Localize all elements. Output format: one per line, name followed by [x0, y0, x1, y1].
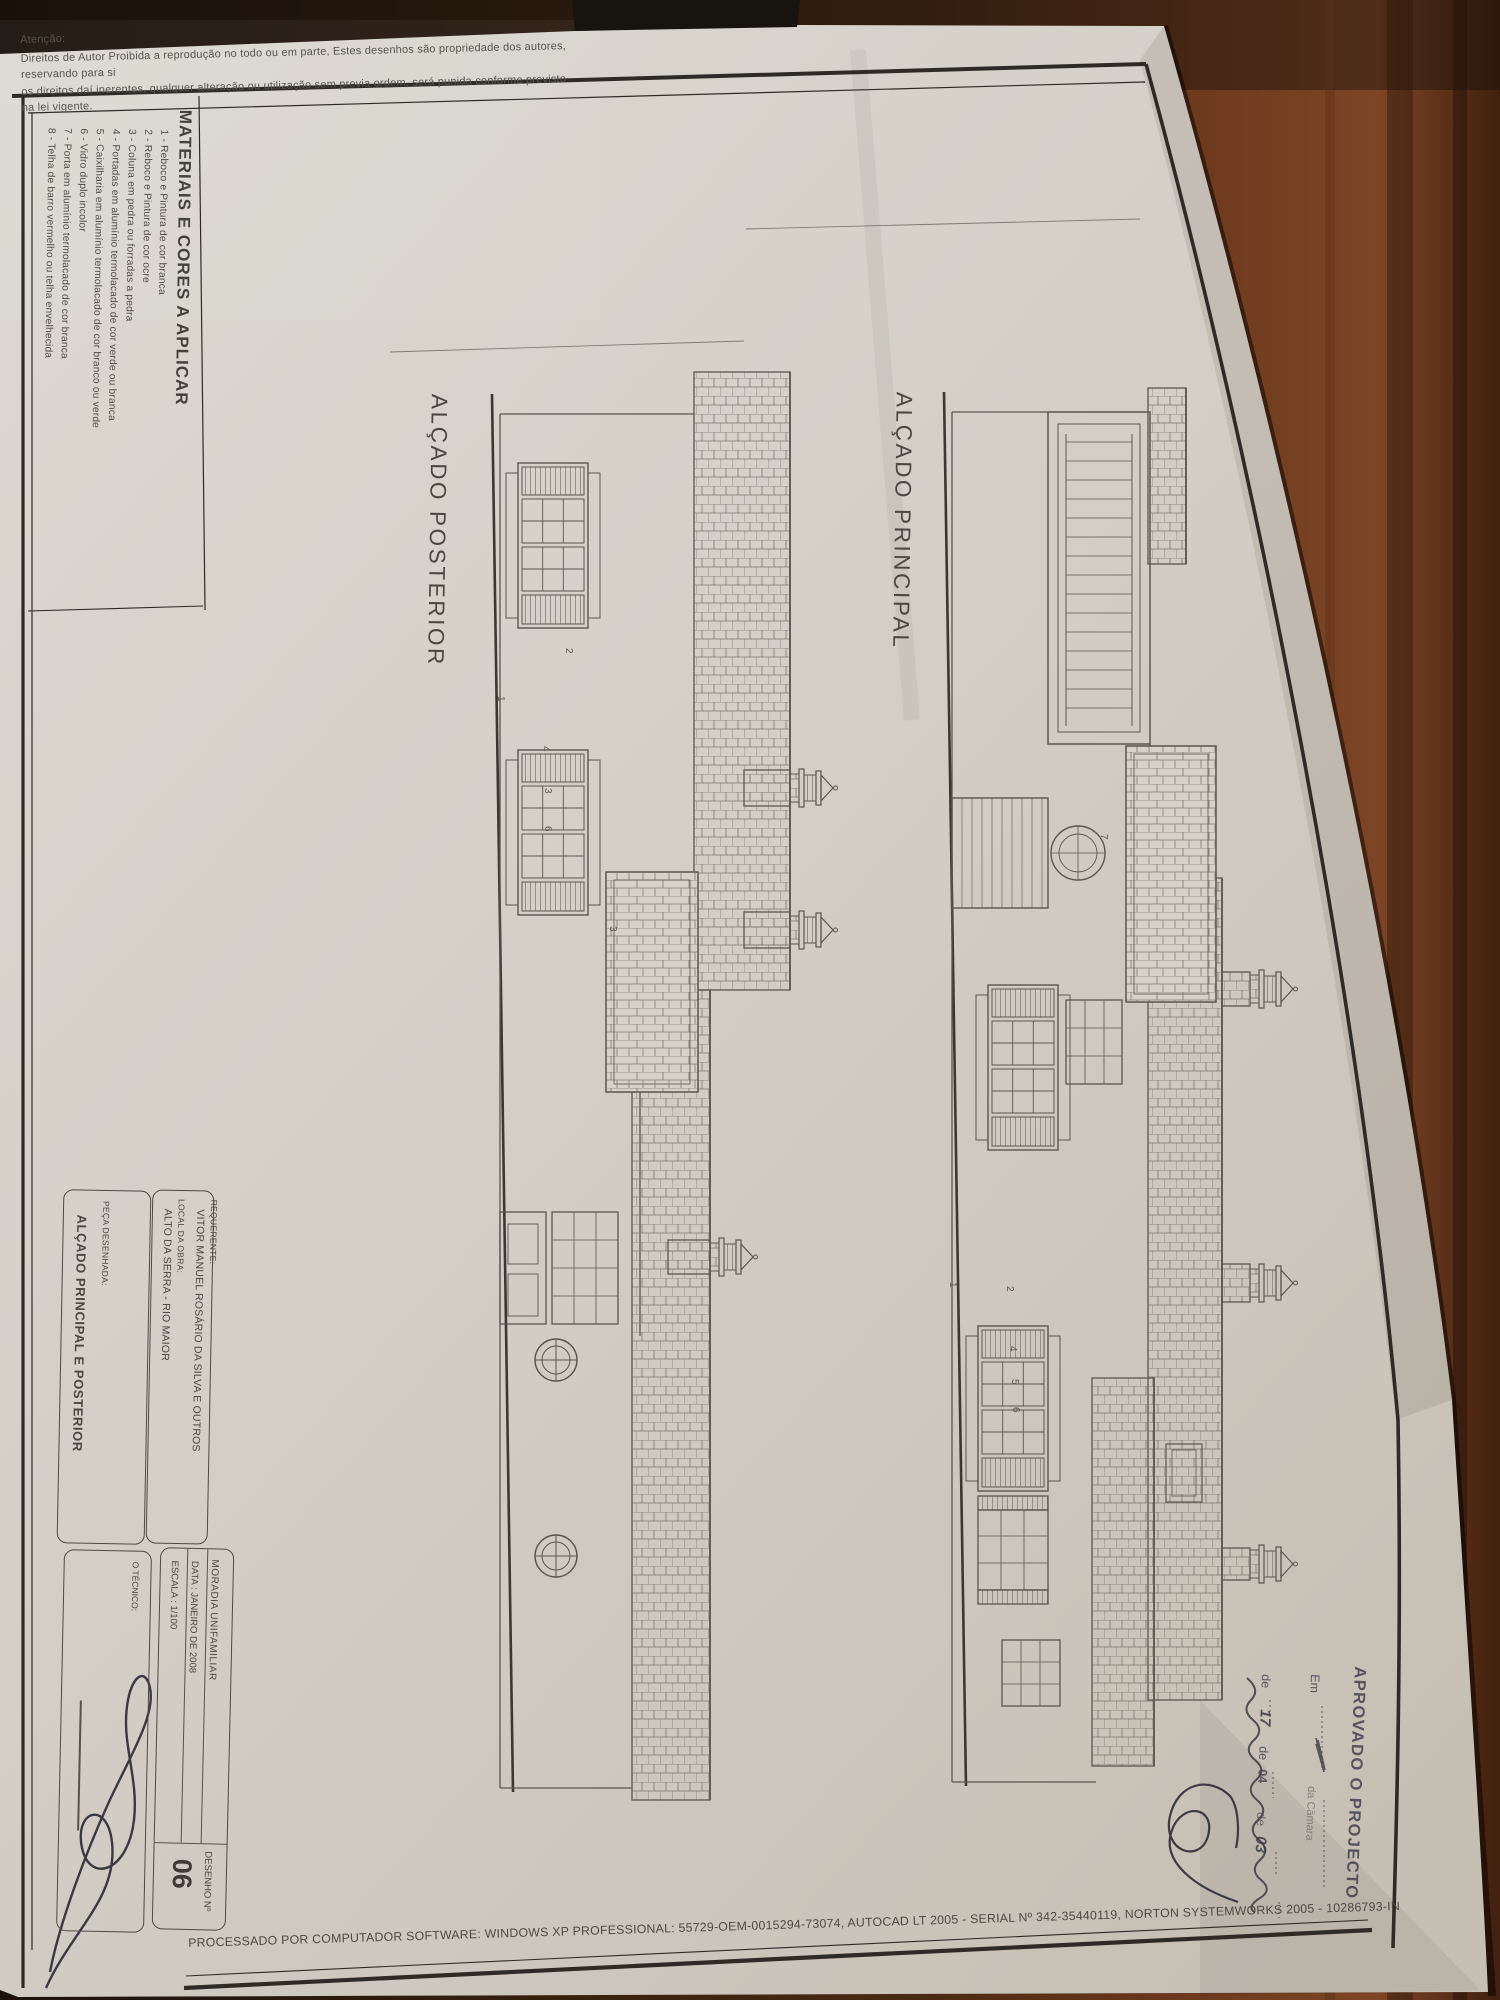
photo-of-architectural-drawing: Atenção: Direitos de Autor Proibida a re… [0, 0, 1500, 2000]
materials-legend: MATERIAIS E CORES A APLICAR 1 - Reboco e… [19, 106, 198, 638]
posterior-material-label: 6 [542, 826, 553, 832]
posterior-material-label: 3 [542, 788, 553, 794]
stamp-em-label: Em [1307, 1674, 1322, 1693]
principal-material-label: 7 [1098, 834, 1109, 840]
titleblock-requerente-box: REQUERENTE: VITOR MANUEL ROSÁRIO DA SILV… [146, 1189, 215, 1544]
principal-roof-band-top [1148, 388, 1186, 564]
stamp-de-2: de [1256, 1746, 1270, 1760]
posterior-porthole-window-1 [535, 1339, 577, 1381]
posterior-porthole-window-2 [535, 1535, 577, 1577]
posterior-roof-band-main [694, 372, 790, 990]
titleblock-project-box: MORADIA UNIFAMILIAR DATA : JANEIRO DE 20… [152, 1547, 235, 1931]
posterior-material-label: 4 [540, 746, 551, 752]
copyright-disclaimer: Atenção: Direitos de Autor Proibida a re… [20, 19, 582, 117]
posterior-material-label: 2 [563, 648, 574, 654]
titleblock-tecnico-box: O TÉCNICO: [56, 1549, 152, 1933]
stamp-handwritten-year: 03 [1252, 1836, 1270, 1853]
principal-material-label: 2 [1004, 1286, 1015, 1292]
posterior-stone-pillar [606, 872, 698, 1092]
stamp-de-3: de [1254, 1812, 1268, 1826]
stamp-camara-label: da Câmara [1303, 1786, 1317, 1841]
date-value: DATA : JANEIRO DE 2008 [186, 1561, 200, 1673]
peca-label: PEÇA DESENHADA: [93, 1201, 112, 1533]
desenho-label: DESENHO Nº [201, 1851, 213, 1911]
principal-material-label: 1 [947, 1282, 958, 1288]
dark-clip-tab [572, 0, 800, 31]
signature-line [77, 1700, 82, 1830]
titleblock-peca-box: PEÇA DESENHADA: ALÇADO PRINCIPAL E POSTE… [57, 1189, 152, 1545]
stamp-handwritten-day: 17 [1256, 1709, 1274, 1726]
stamp-month: 04 [1255, 1769, 1269, 1783]
stamp-de-1: de [1259, 1674, 1273, 1688]
principal-material-label: 4 [1007, 1346, 1018, 1352]
tecnico-label: O TÉCNICO: [130, 1562, 141, 1612]
peca-value: ALÇADO PRINCIPAL E POSTERIOR [66, 1214, 92, 1532]
principal-stone-pillar [1126, 746, 1216, 1002]
desenho-number: 06 [166, 1858, 198, 1889]
principal-round-window [1051, 826, 1105, 880]
moradia-title: MORADIA UNIFAMILIAR [206, 1559, 220, 1680]
principal-material-label: 6 [1010, 1407, 1021, 1413]
posterior-material-label: 3 [607, 926, 618, 932]
posterior-material-label: 1 [495, 696, 506, 702]
posterior-roof-band-wing [632, 990, 710, 1800]
principal-roof-band-lower [1092, 1378, 1154, 1766]
scale-value: ESCALA : 1/100 [167, 1560, 180, 1629]
principal-elevation-title: ALÇADO PRINCIPAL [887, 392, 917, 650]
posterior-elevation-title: ALÇADO POSTERIOR [422, 394, 452, 667]
principal-material-label: 5 [1009, 1379, 1020, 1385]
